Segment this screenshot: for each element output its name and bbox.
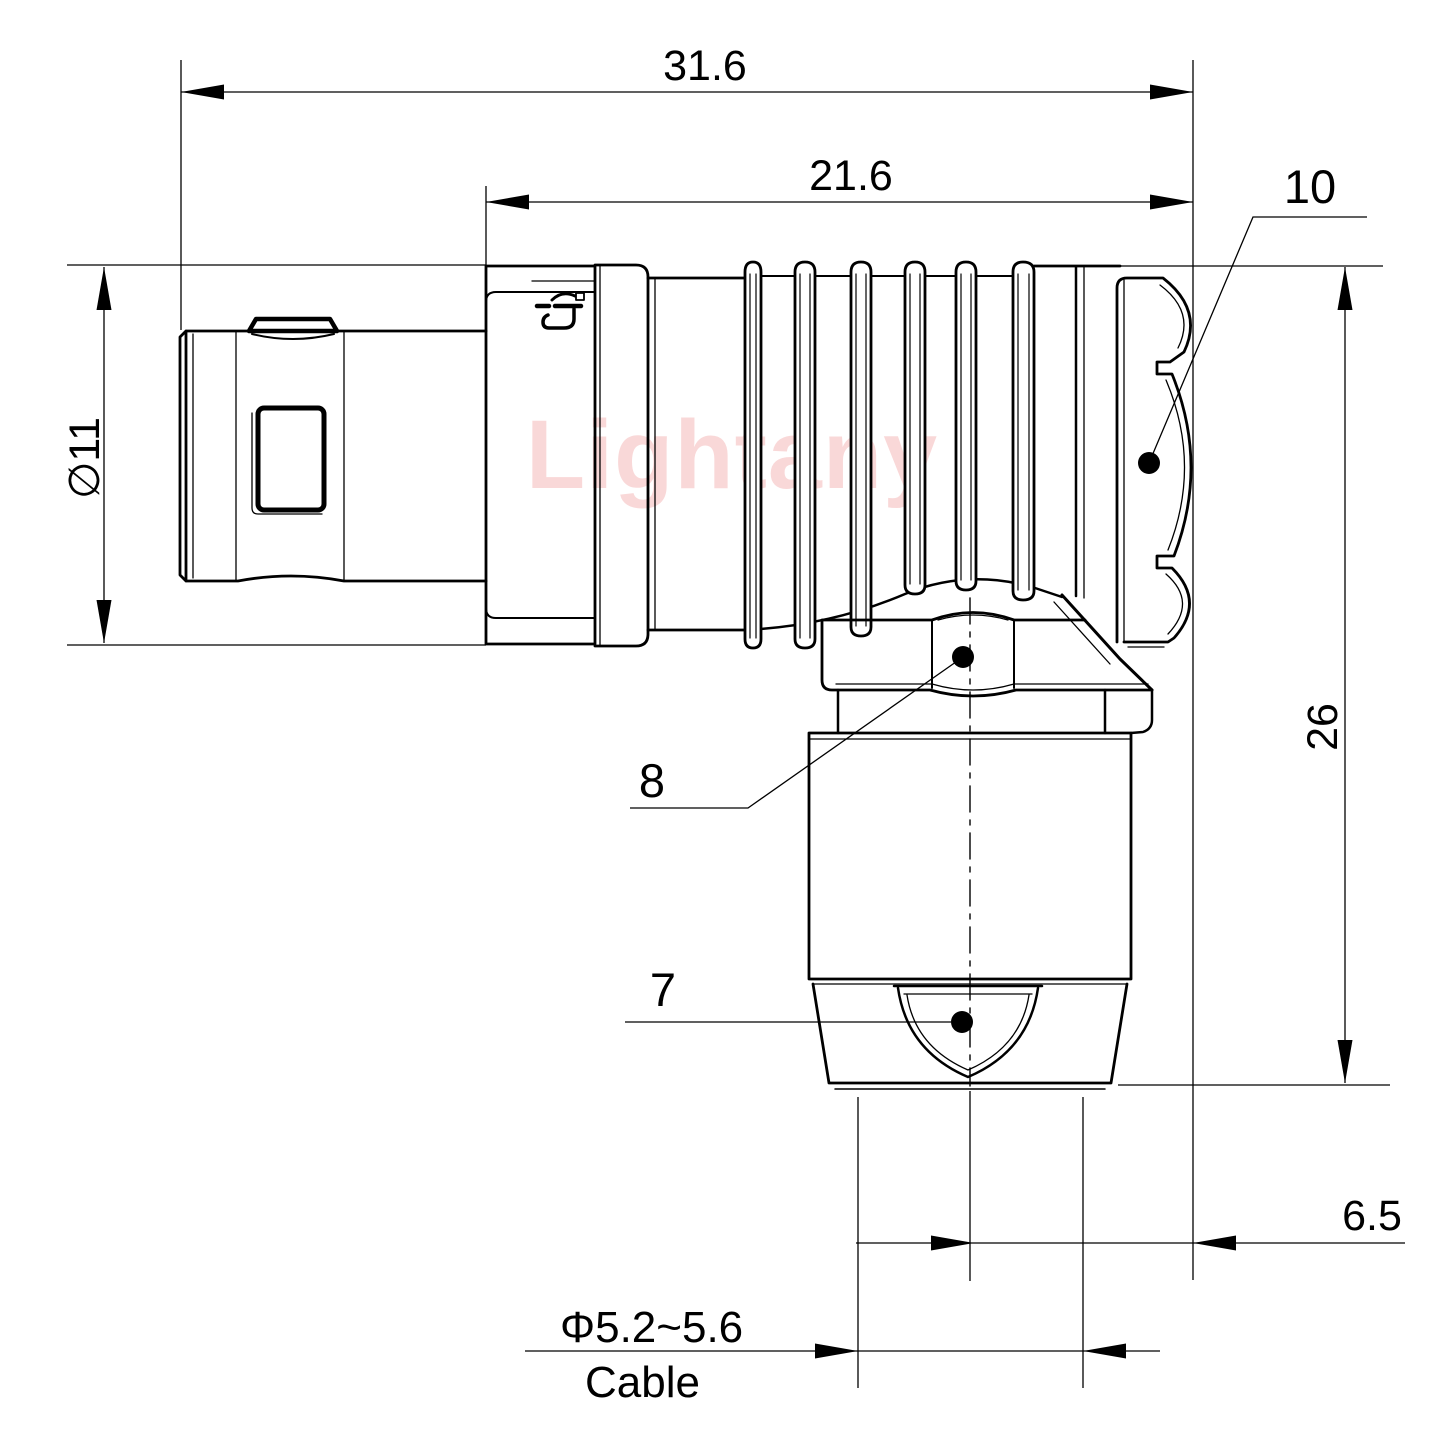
label-axis-to-face-offset: 6.5 xyxy=(1342,1192,1402,1240)
label-cable-diameter: Φ5.2~5.6 xyxy=(560,1303,743,1352)
extension-lines xyxy=(67,60,1390,1388)
latch-window-offset xyxy=(252,413,322,514)
arrow-bottom-dia11 xyxy=(97,600,112,643)
shoulder-step xyxy=(1131,690,1152,733)
label-overall-length: 31.6 xyxy=(663,42,747,90)
rear-shell-outline xyxy=(180,331,486,581)
bushing-cutout xyxy=(894,986,1042,1077)
latch-window xyxy=(258,408,324,510)
arrow-top-dia11 xyxy=(97,267,112,310)
label-cable-caption: Cable xyxy=(585,1358,700,1407)
shoulder-edge-thin xyxy=(1054,602,1110,664)
arrow-left-31-6 xyxy=(181,85,224,100)
callout-dot-8 xyxy=(952,646,974,668)
callout-dot-10 xyxy=(1138,452,1160,474)
bushing-cutout-inner xyxy=(904,994,1032,1070)
rear-shell-inner-lines xyxy=(193,332,344,580)
arrow-bottom-26 xyxy=(1338,1040,1353,1083)
callout-dot-7 xyxy=(951,1011,973,1033)
arrow-right-31-6 xyxy=(1150,85,1193,100)
callout-label-8: 8 xyxy=(639,754,665,807)
rear-shell xyxy=(180,319,486,581)
callout-label-7: 7 xyxy=(650,963,676,1016)
latch-arc xyxy=(252,334,334,339)
dimension-lines xyxy=(67,60,1405,1388)
arrow-top-26 xyxy=(1338,267,1353,310)
dimension-arrows xyxy=(97,85,1353,1359)
hex-nut-inner-lines xyxy=(836,615,1148,690)
engraving-square xyxy=(576,293,584,300)
arrow-left-21-6 xyxy=(486,195,529,210)
connector-side-view xyxy=(180,262,1191,1089)
connector-technical-drawing: Lightany xyxy=(0,0,1440,1440)
arrow-left-cable xyxy=(815,1344,858,1359)
arrow-left-6-5 xyxy=(931,1236,974,1251)
elbow-shoulder xyxy=(1034,266,1152,733)
drawing-sheet: Lightany xyxy=(0,0,1440,1440)
latch-button xyxy=(249,319,337,331)
callout-label-10: 10 xyxy=(1284,160,1336,213)
watermark-text: Lightany xyxy=(526,400,938,509)
engraving-dome xyxy=(552,294,575,300)
logo-engraving xyxy=(537,293,584,328)
arrow-right-cable xyxy=(1083,1344,1126,1359)
label-shell-diameter: ∅11 xyxy=(61,417,109,499)
arrow-right-21-6 xyxy=(1150,195,1193,210)
dimension-labels: 31.6 21.6 ∅11 26 6.5 Φ5.2~5.6 Cable 10 8… xyxy=(61,42,1402,1407)
arrow-right-6-5 xyxy=(1193,1236,1236,1251)
label-front-section-length: 21.6 xyxy=(809,152,893,200)
engraving-hook xyxy=(543,309,574,328)
label-overall-height: 26 xyxy=(1299,703,1347,751)
